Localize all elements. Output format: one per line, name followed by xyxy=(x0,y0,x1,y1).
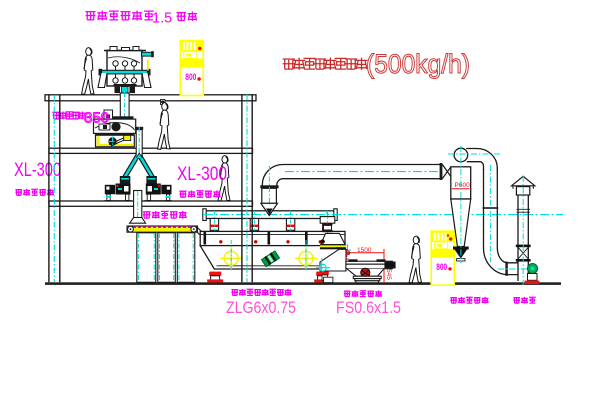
svg-text:ZLG6x0.75: ZLG6x0.75 xyxy=(226,299,296,317)
svg-text:P600: P600 xyxy=(455,182,471,189)
svg-text:1.5: 1.5 xyxy=(152,11,172,27)
svg-text:XL-300: XL-300 xyxy=(177,164,227,185)
svg-text:350: 350 xyxy=(84,110,109,127)
svg-text:FS0.6x1.5: FS0.6x1.5 xyxy=(336,299,401,317)
svg-text:545: 545 xyxy=(385,269,392,280)
svg-text:(500kg/h): (500kg/h) xyxy=(366,49,470,79)
svg-text:1500: 1500 xyxy=(357,247,372,254)
